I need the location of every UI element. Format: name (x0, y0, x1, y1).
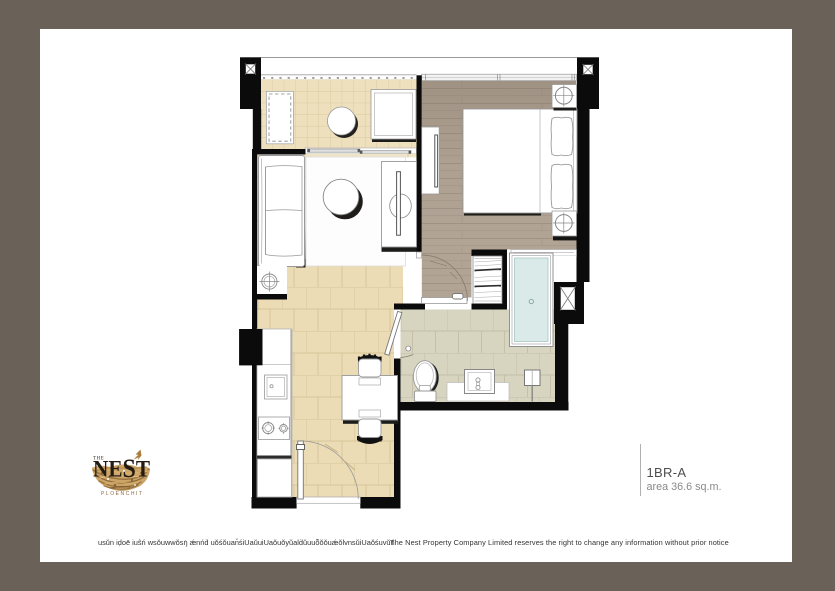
svg-text:PLOENCHIT: PLOENCHIT (101, 491, 144, 497)
svg-text:NEST: NEST (93, 454, 150, 483)
